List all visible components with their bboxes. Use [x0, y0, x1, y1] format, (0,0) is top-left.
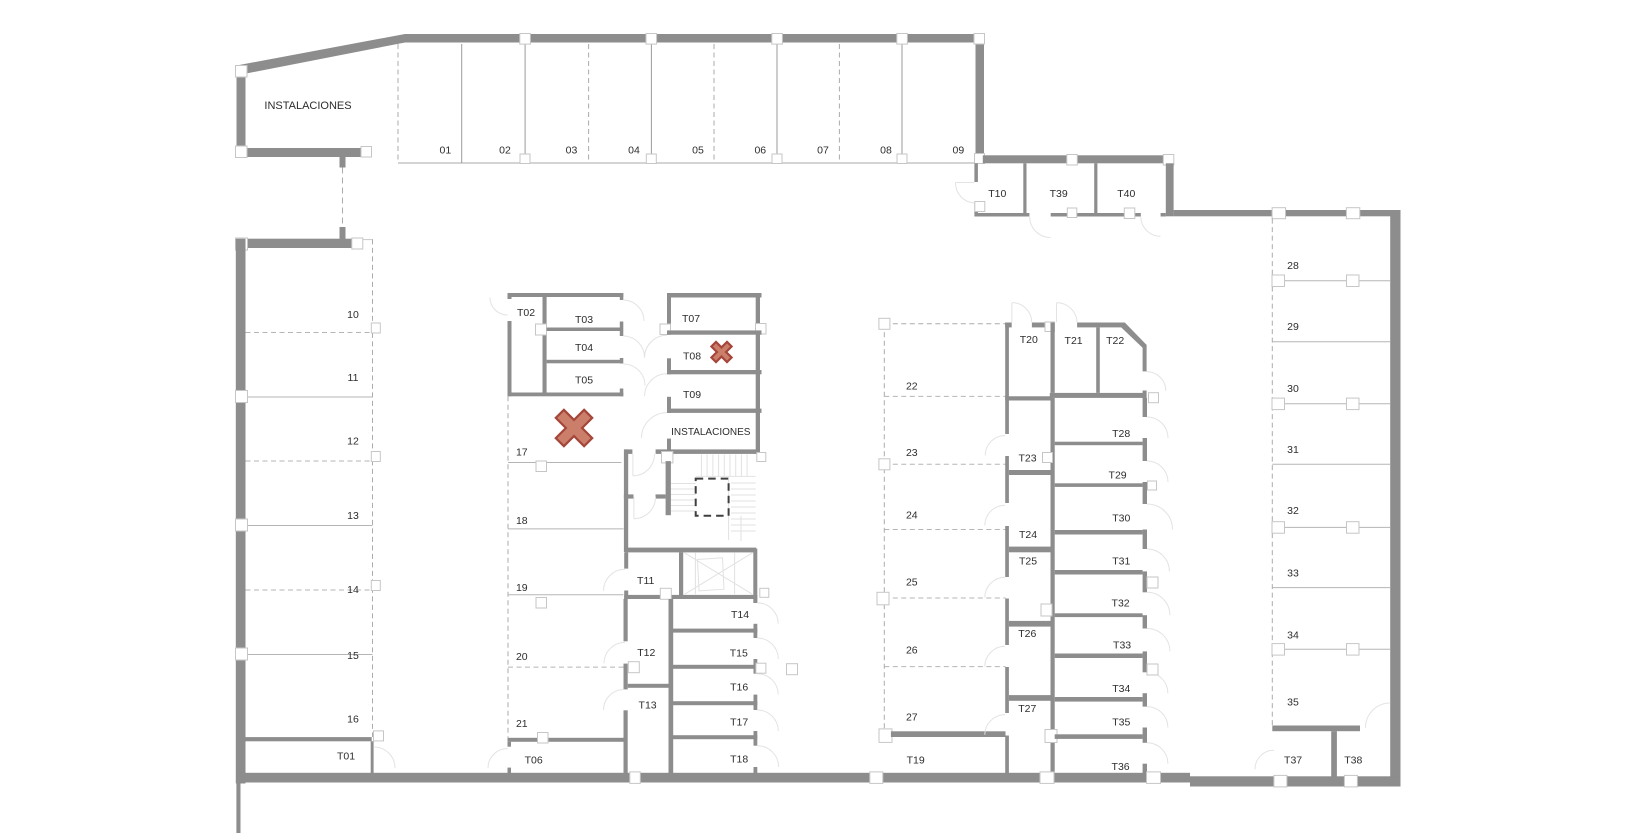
svg-text:08: 08	[880, 145, 892, 157]
svg-text:09: 09	[953, 145, 965, 157]
svg-text:T02: T02	[517, 307, 535, 319]
svg-text:T01: T01	[337, 750, 355, 762]
svg-text:T34: T34	[1112, 683, 1130, 695]
svg-text:14: 14	[347, 584, 359, 596]
svg-text:T16: T16	[730, 681, 748, 693]
svg-text:INSTALACIONES: INSTALACIONES	[671, 427, 751, 438]
svg-text:27: 27	[906, 712, 918, 724]
svg-text:T11: T11	[637, 575, 654, 587]
svg-text:T06: T06	[525, 755, 543, 767]
svg-text:12: 12	[347, 435, 359, 447]
svg-text:T32: T32	[1112, 598, 1130, 610]
svg-text:05: 05	[692, 145, 704, 157]
svg-text:T22: T22	[1106, 335, 1124, 347]
svg-text:T17: T17	[730, 717, 748, 729]
svg-text:T18: T18	[730, 753, 748, 765]
svg-text:T21: T21	[1065, 335, 1083, 347]
svg-text:T14: T14	[731, 609, 749, 621]
svg-text:34: 34	[1287, 630, 1299, 642]
svg-text:32: 32	[1287, 505, 1299, 517]
svg-text:T30: T30	[1112, 513, 1130, 525]
svg-text:T25: T25	[1019, 556, 1037, 568]
svg-text:T37: T37	[1284, 754, 1302, 766]
svg-text:T23: T23	[1018, 453, 1036, 465]
svg-text:T38: T38	[1344, 754, 1362, 766]
svg-text:T26: T26	[1018, 628, 1036, 640]
svg-text:T13: T13	[639, 700, 657, 712]
svg-text:INSTALACIONES: INSTALACIONES	[264, 100, 351, 112]
svg-text:T28: T28	[1112, 428, 1130, 440]
svg-text:T39: T39	[1050, 188, 1068, 200]
svg-text:T05: T05	[575, 375, 593, 387]
svg-text:T24: T24	[1019, 529, 1037, 541]
svg-text:28: 28	[1287, 260, 1299, 272]
svg-text:01: 01	[440, 145, 452, 157]
svg-text:T40: T40	[1117, 188, 1135, 200]
svg-text:25: 25	[906, 577, 918, 589]
svg-text:24: 24	[906, 510, 918, 522]
svg-text:07: 07	[817, 145, 829, 157]
svg-text:17: 17	[516, 446, 528, 458]
svg-text:T08: T08	[683, 351, 701, 363]
svg-text:T20: T20	[1020, 334, 1038, 346]
svg-text:22: 22	[906, 381, 918, 393]
svg-text:23: 23	[906, 447, 918, 459]
svg-text:11: 11	[348, 372, 359, 384]
svg-text:31: 31	[1287, 444, 1299, 456]
svg-text:T15: T15	[730, 647, 748, 659]
svg-text:T09: T09	[683, 389, 701, 401]
svg-text:26: 26	[906, 645, 918, 657]
svg-text:21: 21	[516, 718, 528, 730]
svg-text:T27: T27	[1018, 703, 1036, 715]
svg-text:15: 15	[347, 650, 359, 662]
svg-text:16: 16	[347, 714, 359, 726]
svg-text:T36: T36	[1112, 761, 1130, 773]
svg-text:20: 20	[516, 651, 528, 663]
svg-text:04: 04	[628, 145, 640, 157]
svg-text:02: 02	[499, 145, 511, 157]
svg-text:35: 35	[1287, 696, 1299, 708]
svg-text:T10: T10	[988, 188, 1006, 200]
svg-text:03: 03	[566, 145, 578, 157]
svg-text:06: 06	[754, 145, 766, 157]
svg-text:T03: T03	[575, 314, 593, 326]
svg-text:T04: T04	[575, 342, 593, 354]
svg-text:T31: T31	[1112, 556, 1130, 568]
svg-text:10: 10	[347, 309, 359, 321]
svg-text:T33: T33	[1113, 639, 1131, 651]
svg-text:19: 19	[516, 582, 528, 594]
svg-text:T35: T35	[1112, 716, 1130, 728]
svg-text:29: 29	[1287, 321, 1299, 333]
svg-text:30: 30	[1287, 383, 1299, 395]
svg-text:13: 13	[347, 510, 359, 522]
svg-text:T07: T07	[682, 313, 700, 325]
svg-text:T29: T29	[1109, 470, 1127, 482]
svg-text:T19: T19	[907, 754, 925, 766]
svg-text:T12: T12	[637, 647, 655, 659]
svg-text:18: 18	[516, 515, 528, 527]
svg-text:33: 33	[1287, 568, 1299, 580]
